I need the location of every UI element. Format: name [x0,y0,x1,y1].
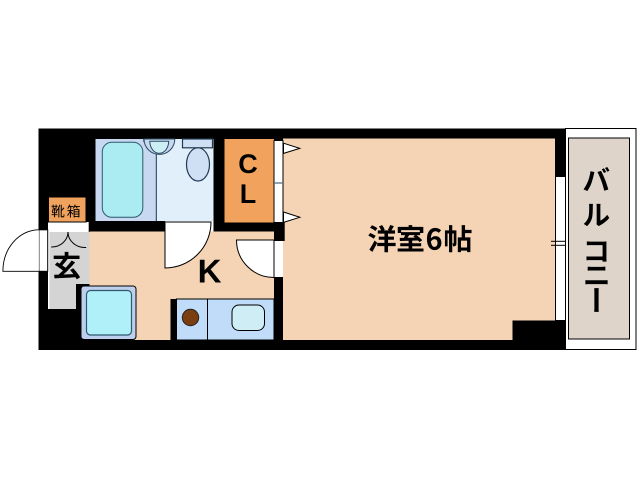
svg-text:L: L [240,179,257,209]
svg-text:C: C [238,149,258,179]
svg-text:K: K [198,253,222,290]
